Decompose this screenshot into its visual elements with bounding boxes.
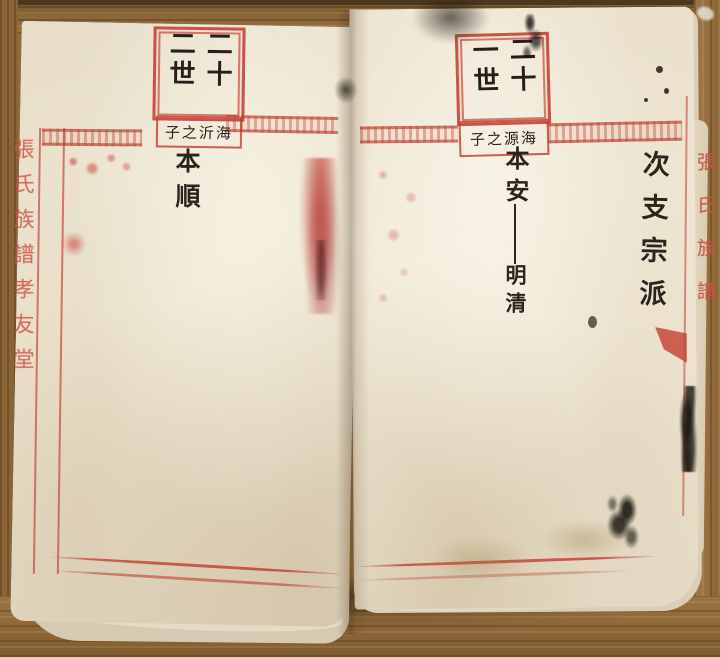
photo-genealogy-book: 張氏族譜孝友堂 二十二世 海沂之子 本順 二十一世 海源之子 本安 明清 次支宗… <box>0 0 720 657</box>
red-ink-blotch <box>60 230 88 258</box>
seal-smudge-dark-core <box>314 240 328 300</box>
left-generation-box: 二十二世 <box>152 26 245 121</box>
ink-dot <box>664 88 669 94</box>
descent-line <box>514 204 516 264</box>
right-name-handwritten: 本安 <box>498 146 533 210</box>
right-top-border-band-left <box>360 125 458 143</box>
left-name-handwritten: 本順 <box>168 148 204 218</box>
book-gutter-shadow <box>336 10 370 634</box>
left-generation-label: 二十二世 <box>161 29 236 118</box>
brown-stain-center <box>430 536 530 582</box>
ink-marks-top <box>518 14 548 58</box>
brown-stain <box>540 520 630 560</box>
left-parent-box: 海沂之子 <box>156 115 242 148</box>
branch-section-label: 次支宗派 <box>630 150 673 323</box>
fore-edge-ink-marks <box>678 386 698 472</box>
right-page-spine-title: 張氏族譜 <box>692 152 719 324</box>
right-child-name-handwritten: 明清 <box>500 264 530 320</box>
ink-dot <box>644 98 648 102</box>
left-top-border-band-left <box>42 129 142 147</box>
left-page-spine-title: 張氏族譜孝友堂 <box>8 138 38 383</box>
right-top-border-band-right <box>548 121 682 144</box>
ink-dot <box>588 316 597 328</box>
left-parent-label: 海沂之子 <box>165 121 233 143</box>
ink-dot <box>656 66 663 73</box>
red-ink-specks-right <box>362 160 432 310</box>
ink-stain-top <box>412 0 490 44</box>
wood-plank-seam <box>0 0 720 5</box>
red-ink-specks <box>58 148 134 182</box>
